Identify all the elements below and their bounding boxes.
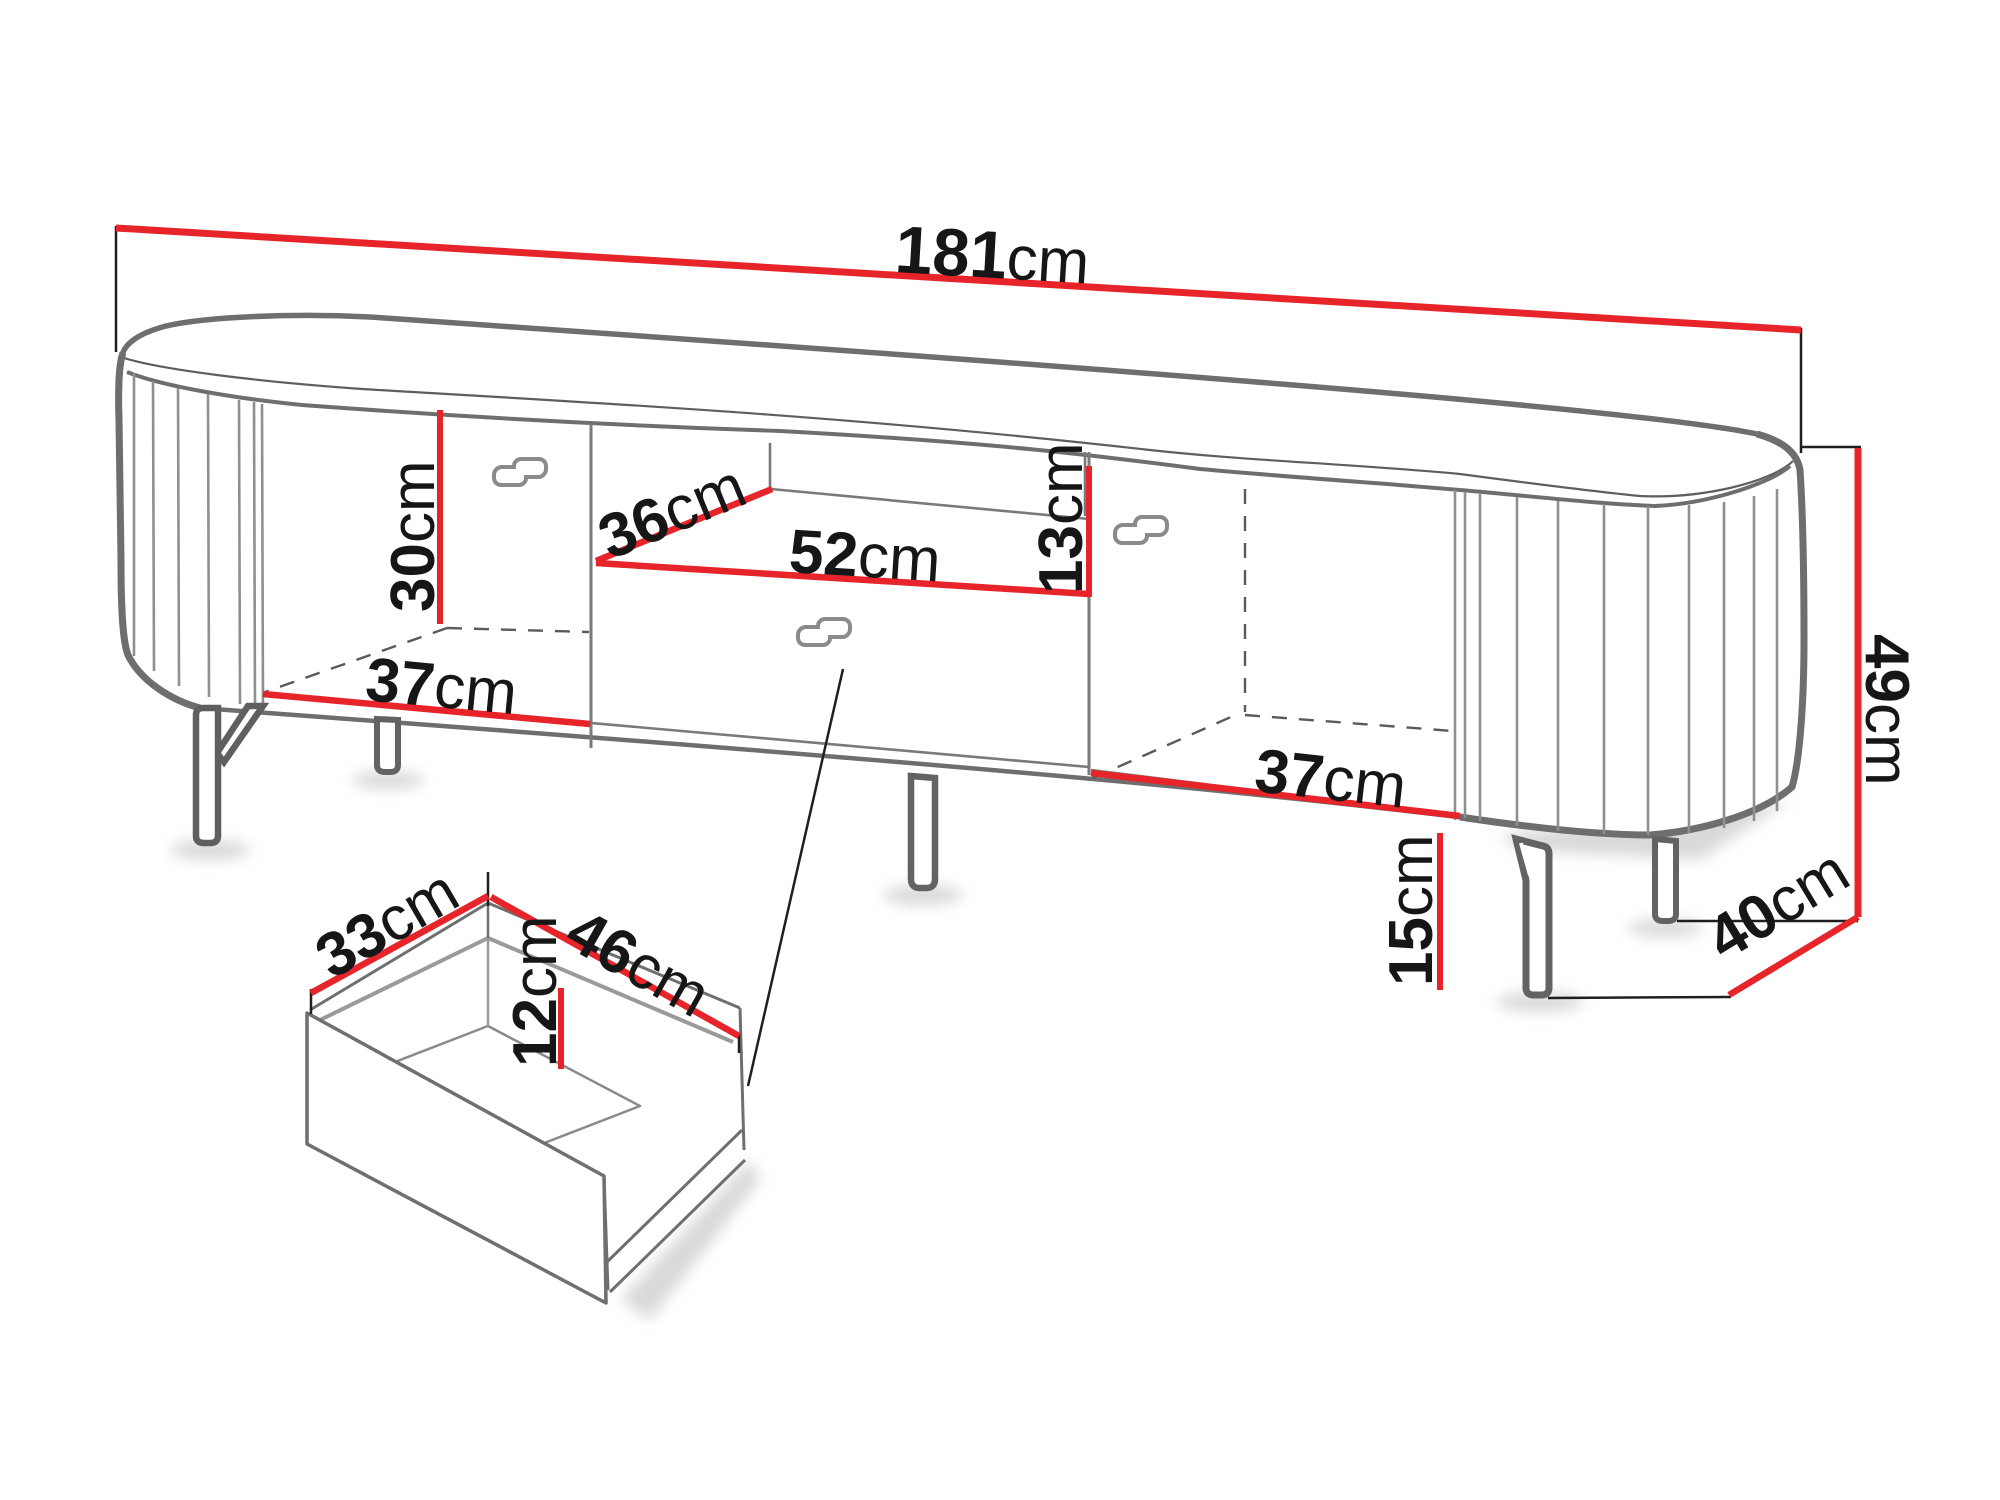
svg-text:52cm: 52cm	[787, 517, 943, 595]
svg-text:12cm: 12cm	[501, 915, 570, 1067]
svg-text:49cm: 49cm	[1852, 634, 1921, 786]
svg-text:37cm: 37cm	[363, 645, 520, 728]
svg-text:30cm: 30cm	[379, 460, 448, 612]
svg-text:13cm: 13cm	[1027, 442, 1096, 594]
svg-text:40cm: 40cm	[1695, 836, 1860, 974]
svg-text:181cm: 181cm	[893, 212, 1092, 298]
svg-text:15cm: 15cm	[1377, 834, 1446, 986]
